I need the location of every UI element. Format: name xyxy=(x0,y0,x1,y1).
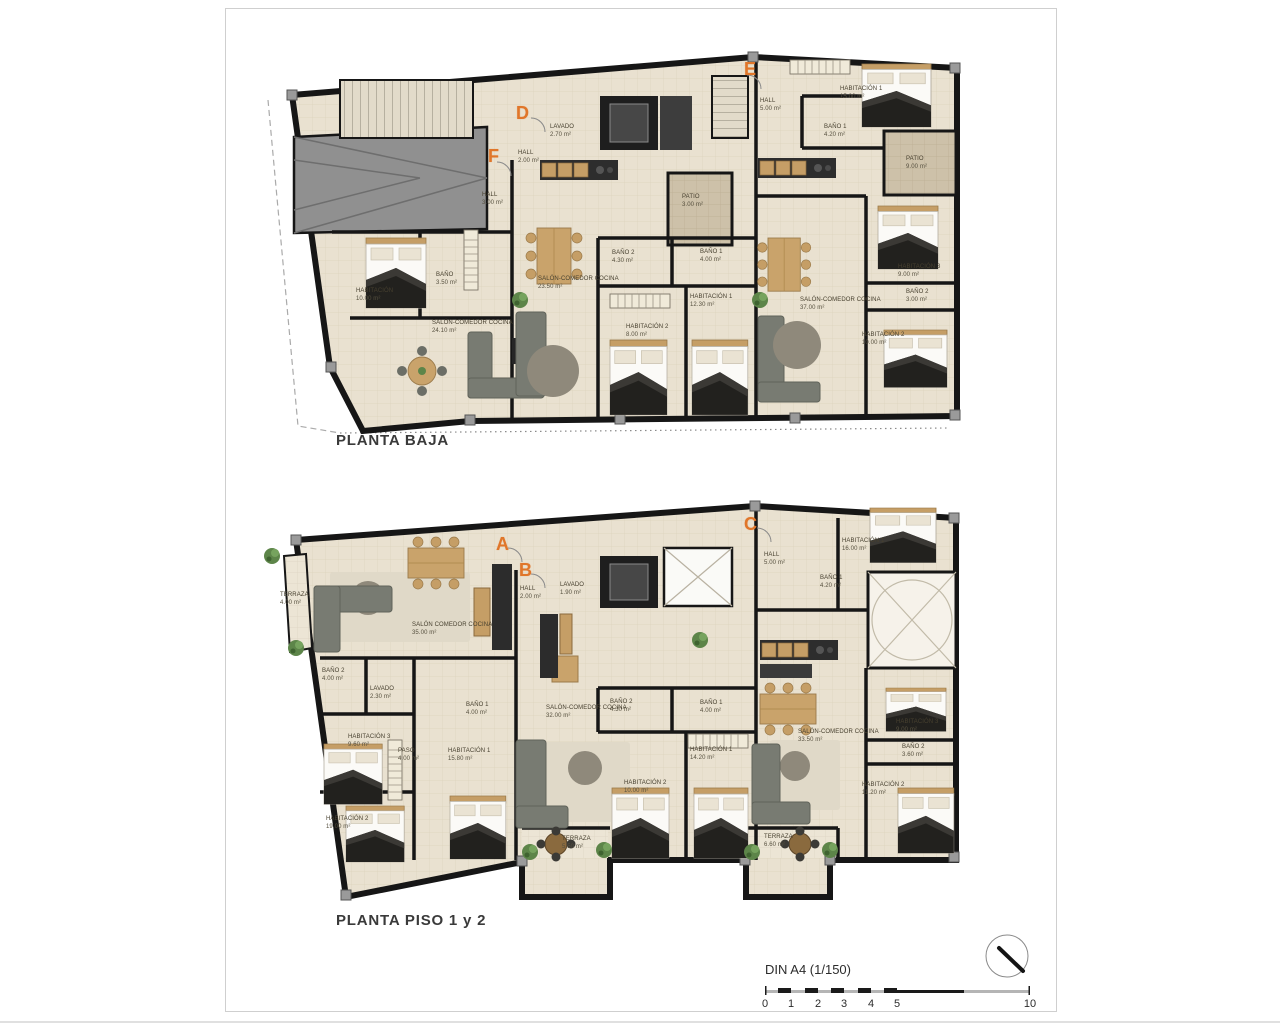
wardrobe xyxy=(388,740,402,800)
page-edge xyxy=(0,1021,1280,1023)
stairs xyxy=(340,80,473,138)
planta-baja-plan xyxy=(268,52,960,433)
plant xyxy=(822,842,838,858)
bed xyxy=(324,744,382,804)
garage-ramp xyxy=(294,127,487,233)
bed xyxy=(692,340,748,415)
wardrobe xyxy=(464,230,478,290)
plant xyxy=(692,632,708,648)
patio xyxy=(668,173,732,245)
kitchen-counter xyxy=(540,160,618,180)
plant xyxy=(512,292,528,308)
elevator xyxy=(600,96,692,150)
bed xyxy=(366,238,426,308)
plant xyxy=(744,844,760,860)
bed xyxy=(886,688,946,731)
kitchen-cabinet xyxy=(560,614,572,654)
kitchen-island xyxy=(760,664,812,678)
kitchen-cabinet xyxy=(474,588,490,636)
plant xyxy=(522,844,538,860)
plant xyxy=(752,292,768,308)
floor-plan-drawing xyxy=(0,0,1280,1024)
north-arrow-icon xyxy=(986,935,1028,977)
wardrobe xyxy=(610,294,670,308)
sheet: HABITACIÓN 10.00 m² BAÑO 3.50 m² SALÓN-C… xyxy=(0,0,1280,1024)
dining-table xyxy=(526,228,582,284)
dining-table xyxy=(758,238,811,291)
rug xyxy=(780,751,810,781)
plant xyxy=(288,640,304,656)
stairs xyxy=(712,76,748,138)
wardrobe xyxy=(790,60,850,74)
rug xyxy=(527,345,579,397)
dining-table xyxy=(760,683,816,735)
bed xyxy=(870,508,936,563)
lightwell xyxy=(868,572,956,668)
bed xyxy=(898,788,954,853)
bed xyxy=(878,206,938,269)
elevator xyxy=(600,556,658,608)
bed xyxy=(346,806,404,862)
bed xyxy=(862,64,931,127)
plant xyxy=(596,842,612,858)
kitchen-counter xyxy=(492,564,512,650)
bed xyxy=(694,788,748,858)
kitchen-counter xyxy=(760,640,838,660)
dining-table xyxy=(408,537,464,589)
kitchen-counter xyxy=(540,614,558,678)
rug xyxy=(568,751,602,785)
scale-bar xyxy=(765,986,1030,995)
rug xyxy=(773,321,821,369)
bed xyxy=(612,788,669,858)
wardrobe xyxy=(688,734,748,748)
balcony xyxy=(284,554,312,652)
kitchen-counter xyxy=(758,158,836,178)
boundary-dotted-line xyxy=(340,428,950,433)
bed xyxy=(884,330,947,387)
planta-piso-plan xyxy=(264,501,959,900)
plant xyxy=(264,548,280,564)
bed xyxy=(450,796,506,859)
stair-void xyxy=(664,548,732,606)
patio xyxy=(884,131,956,195)
bed xyxy=(610,340,667,415)
